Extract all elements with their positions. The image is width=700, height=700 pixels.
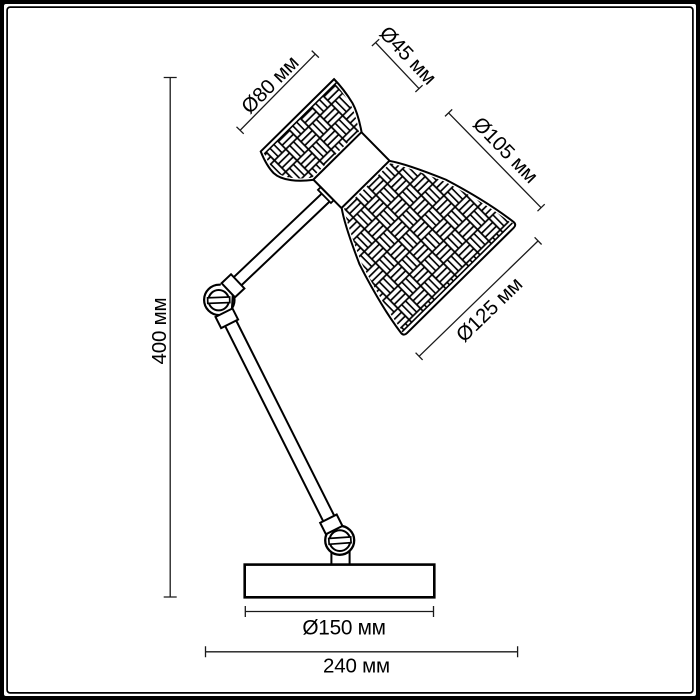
svg-text:400 мм: 400 мм <box>148 298 171 365</box>
svg-text:Ø150 мм: Ø150 мм <box>302 617 385 640</box>
svg-text:240 мм: 240 мм <box>323 655 390 678</box>
